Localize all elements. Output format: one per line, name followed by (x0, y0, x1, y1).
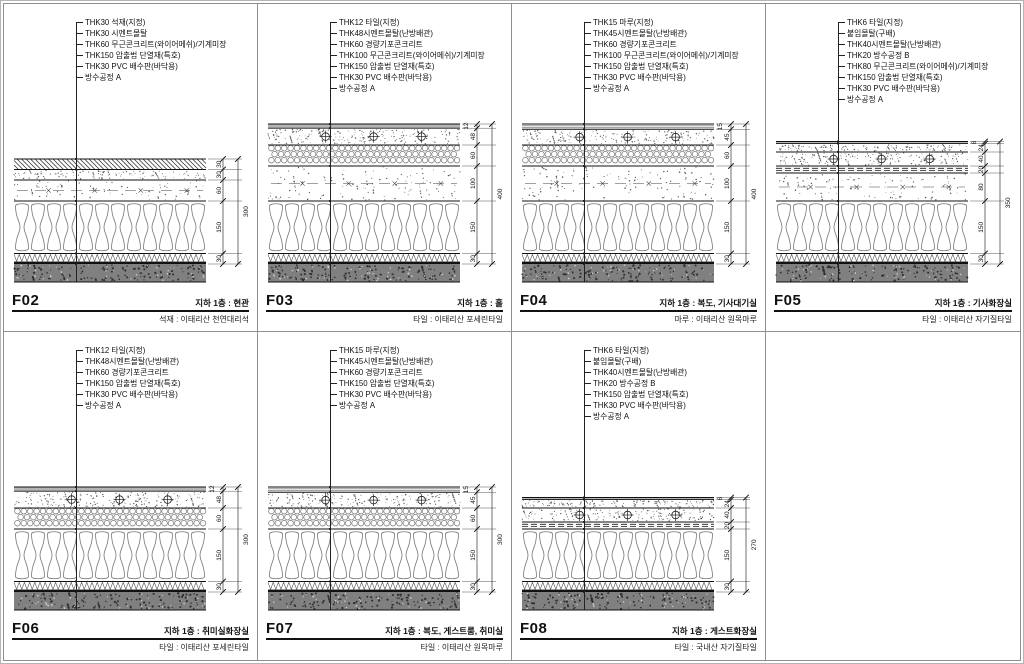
section-drawing: 30306015030300 (10, 96, 252, 292)
room-label: 지하 1층 : 게스트화장실 (672, 625, 757, 637)
leader-line (330, 22, 331, 282)
layer-concrete (522, 166, 714, 200)
material-callout: THK15 마루(지정) (584, 17, 739, 28)
finish-note: 석재 : 이태리산 천연대리석 (12, 314, 249, 325)
material-callout: THK12 타일(지정) (330, 17, 485, 28)
material-callout: THK150 압출법 단열재(특호) (584, 389, 689, 400)
material-callout: THK30 PVC 배수판(바닥용) (838, 83, 988, 94)
material-callout: THK80 무근콘크리트(와이어메쉬)/기계미장 (838, 61, 988, 72)
layer-stone (14, 159, 206, 170)
layer-tile (268, 124, 460, 127)
dimension-label: 100 (470, 178, 477, 189)
material-callout: THK30 PVC 배수판(바닥용) (76, 61, 226, 72)
dimension-label: 30 (216, 160, 223, 168)
material-callout: 방수공정 A (330, 83, 485, 94)
dimension-label: 20 (724, 522, 731, 530)
layer-waterproof (522, 522, 714, 529)
detail-id: F05 (774, 292, 801, 309)
finish-note: 타일 : 이태리산 원목마루 (266, 642, 503, 653)
layer-concrete (268, 167, 461, 201)
detail-id: F06 (12, 620, 39, 637)
section-drawing: 624402015030270 (518, 424, 760, 620)
material-callout: THK45시멘트몰탈(난방배관) (330, 356, 435, 367)
section-drawing: 12486010015030400 (264, 96, 506, 292)
finish-note: 타일 : 이태리산 자기질타일 (774, 314, 1012, 325)
dimension-label: 30 (216, 171, 223, 179)
dimension-label: 150 (724, 221, 731, 232)
material-callout: THK60 무근콘크리트(와이어메쉬)/기계미장 (76, 39, 226, 50)
room-label: 지하 1층 : 취미실화장실 (164, 625, 249, 637)
material-callout: THK48시멘트몰탈(난방배관) (76, 356, 181, 367)
dimension-label: 80 (978, 183, 985, 191)
dimension-label: 20 (978, 166, 985, 174)
title-row: F08지하 1층 : 게스트화장실 (520, 620, 757, 640)
material-callout: THK20 방수공정 B (838, 50, 988, 61)
dimension-label: 30 (216, 255, 223, 263)
material-callout: THK100 무근콘크리트(와이어메쉬)/기계미장 (584, 50, 739, 61)
layer-slab (14, 264, 206, 282)
material-callout: THK150 압출법 단열재(특호) (330, 378, 435, 389)
room-label: 지하 1층 : 복도, 기사대기실 (659, 297, 757, 309)
detail-id: F02 (12, 292, 39, 309)
layer-slab (521, 264, 714, 282)
panel-f07: THK15 마루(지정)THK45시멘트몰탈(난방배관)THK60 경량기포콘크… (258, 332, 512, 660)
layer-waterproof (776, 166, 968, 173)
layer-concrete (779, 173, 966, 200)
empty-cell (766, 332, 1020, 660)
layer-drain (14, 254, 206, 264)
section-drawing: 15456010015030400 (518, 96, 760, 292)
dimension-label: 150 (978, 221, 985, 232)
room-label: 지하 1층 : 기사화장실 (935, 297, 1012, 309)
dimension-label: 24 (978, 144, 985, 152)
material-callout: 방수공정 A (584, 83, 739, 94)
panel-f02: THK30 석재(지정)THK30 시멘트몰탈THK60 무근콘크리트(와이어메… (4, 4, 258, 332)
material-callout: THK30 PVC 배수판(바닥용) (584, 72, 739, 83)
material-callout: THK150 압출법 단열재(특호) (76, 50, 226, 61)
material-callout: THK40시멘트몰탈(난방배관) (838, 39, 988, 50)
material-callout: THK150 압출법 단열재(특호) (76, 378, 181, 389)
dimension-label: 48 (216, 496, 223, 504)
material-callout: THK30 PVC 배수판(바닥용) (330, 72, 485, 83)
layer-concrete (14, 180, 206, 200)
layer-insulation (778, 204, 967, 251)
total-dimension-label: 350 (1005, 197, 1012, 208)
dimension-label: 12 (463, 122, 470, 130)
layer-insulation (524, 532, 713, 579)
layer-mortar_pipe (268, 129, 461, 145)
layer-mortar_pipe (14, 492, 204, 508)
layer-slab (14, 592, 206, 610)
leader-line (584, 350, 585, 610)
room-label: 지하 1층 : 현관 (195, 297, 249, 309)
title-block: F08지하 1층 : 게스트화장실타일 : 국내산 자기질타일 (520, 620, 757, 653)
layer-foam (269, 508, 460, 526)
layer-mortar_pipe (780, 153, 968, 166)
drawing-sheet: THK30 석재(지정)THK30 시멘트몰탈THK60 무근콘크리트(와이어메… (0, 0, 1024, 664)
material-callout: THK150 압출법 단열재(특호) (584, 61, 739, 72)
dimension-label: 15 (717, 123, 724, 131)
panel-f08: THK6 타일(지정)붙임몰탈(구배)THK40시멘트몰탈(난방배관)THK20… (512, 332, 766, 660)
dimension-label: 150 (470, 549, 477, 560)
title-row: F07지하 1층 : 복도, 게스트룸, 취미실 (266, 620, 503, 640)
leader-line (76, 350, 77, 610)
material-callouts: THK12 타일(지정)THK48시멘트몰탈(난방배관)THK60 경량기포콘크… (76, 345, 181, 411)
layer-insulation (524, 204, 713, 251)
detail-id: F03 (266, 292, 293, 309)
material-callout: THK15 마루(지정) (330, 345, 435, 356)
dimension-label: 45 (470, 496, 477, 504)
layer-drain (522, 254, 714, 264)
dimension-label: 24 (724, 500, 731, 508)
material-callouts: THK15 마루(지정)THK45시멘트몰탈(난방배관)THK60 경량기포콘크… (584, 17, 739, 94)
material-callout: 방수공정 A (584, 411, 689, 422)
total-dimension-label: 270 (751, 539, 758, 550)
layer-slab (268, 264, 460, 282)
panel-f05: THK6 타일(지정)붙임몰탈(구배)THK40시멘트몰탈(난방배관)THK20… (766, 4, 1020, 332)
material-callouts: THK12 타일(지정)THK48시멘트몰탈(난방배관)THK60 경량기포콘크… (330, 17, 485, 94)
layer-tile (776, 142, 968, 143)
dimension-label: 100 (724, 178, 731, 189)
material-callouts: THK30 석재(지정)THK30 시멘트몰탈THK60 무근콘크리트(와이어메… (76, 17, 226, 83)
detail-id: F08 (520, 620, 547, 637)
finish-note: 타일 : 이태리산 포세린타일 (266, 314, 503, 325)
layer-drain (268, 582, 460, 592)
finish-note: 타일 : 이태리산 포세린타일 (12, 642, 249, 653)
section-drawing: 62440208015030350 (772, 96, 1014, 292)
title-row: F06지하 1층 : 취미실화장실 (12, 620, 249, 640)
title-block: F02지하 1층 : 현관석재 : 이태리산 천연대리석 (12, 292, 249, 325)
dimension-label: 30 (216, 583, 223, 591)
material-callout: THK40시멘트몰탈(난방배관) (584, 367, 689, 378)
leader-line (838, 22, 839, 282)
layer-insulation (16, 532, 205, 579)
material-callout: THK150 압출법 단열재(특호) (330, 61, 485, 72)
layer-tile (522, 498, 714, 499)
dimension-label: 12 (209, 485, 216, 493)
material-callouts: THK6 타일(지정)붙임몰탈(구배)THK40시멘트몰탈(난방배관)THK20… (584, 345, 689, 422)
layer-mortar (14, 170, 206, 180)
finish-note: 타일 : 국내산 자기질타일 (520, 642, 757, 653)
dimension-label: 60 (216, 187, 223, 195)
title-block: F03지하 1층 : 홀타일 : 이태리산 포세린타일 (266, 292, 503, 325)
layer-slab (268, 592, 460, 610)
dimension-label: 150 (724, 549, 731, 560)
dimension-label: 40 (724, 511, 731, 519)
detail-grid: THK30 석재(지정)THK30 시멘트몰탈THK60 무근콘크리트(와이어메… (3, 3, 1021, 661)
dimension-label: 6 (717, 496, 724, 500)
dimension-label: 48 (470, 133, 477, 141)
material-callout: THK20 방수공정 B (584, 378, 689, 389)
material-callout: 붙임몰탈(구배) (584, 356, 689, 367)
title-block: F07지하 1층 : 복도, 게스트룸, 취미실타일 : 이태리산 원목마루 (266, 620, 503, 653)
total-dimension-label: 300 (243, 206, 250, 217)
dimension-label: 60 (216, 515, 223, 523)
layer-bond (522, 500, 715, 508)
total-dimension-label: 300 (243, 534, 250, 545)
material-callout: THK30 PVC 배수판(바닥용) (584, 400, 689, 411)
total-dimension-label: 300 (497, 534, 504, 545)
layer-wood (522, 124, 714, 129)
leader-line (76, 22, 77, 282)
dimension-label: 60 (724, 152, 731, 160)
layer-drain (776, 254, 968, 264)
layer-drain (14, 582, 206, 592)
layer-foam (15, 508, 206, 526)
material-callout: THK6 타일(지정) (838, 17, 988, 28)
title-block: F06지하 1층 : 취미실화장실타일 : 이태리산 포세린타일 (12, 620, 249, 653)
room-label: 지하 1층 : 복도, 게스트룸, 취미실 (385, 625, 503, 637)
material-callout: 붙임몰탈(구배) (838, 28, 988, 39)
material-callout: THK60 경량기포콘크리트 (76, 367, 181, 378)
material-callout: THK45시멘트몰탈(난방배관) (584, 28, 739, 39)
section-drawing: 15456015030300 (264, 424, 506, 620)
leader-line (584, 22, 585, 282)
material-callout: THK12 타일(지정) (76, 345, 181, 356)
dimension-label: 6 (971, 140, 978, 144)
dimension-label: 150 (216, 221, 223, 232)
total-dimension-label: 400 (751, 188, 758, 199)
layer-mortar_pipe (522, 508, 715, 521)
title-row: F04지하 1층 : 복도, 기사대기실 (520, 292, 757, 312)
material-callout: THK30 PVC 배수판(바닥용) (330, 389, 435, 400)
material-callouts: THK6 타일(지정)붙임몰탈(구배)THK40시멘트몰탈(난방배관)THK20… (838, 17, 988, 105)
dimension-label: 30 (470, 583, 477, 591)
layer-drain (522, 582, 714, 592)
material-callout: THK100 무근콘크리트(와이어메쉬)/기계미장 (330, 50, 485, 61)
material-callout: THK30 PVC 배수판(바닥용) (76, 389, 181, 400)
dimension-label: 60 (470, 515, 477, 523)
material-callout: THK150 압출법 단열재(특호) (838, 72, 988, 83)
panel-f03: THK12 타일(지정)THK48시멘트몰탈(난방배관)THK60 경량기포콘크… (258, 4, 512, 332)
material-callout: THK60 경량기포콘크리트 (584, 39, 739, 50)
title-block: F05지하 1층 : 기사화장실타일 : 이태리산 자기질타일 (774, 292, 1012, 325)
layer-insulation (16, 204, 205, 251)
material-callouts: THK15 마루(지정)THK45시멘트몰탈(난방배관)THK60 경량기포콘크… (330, 345, 435, 411)
panel-f06: THK12 타일(지정)THK48시멘트몰탈(난방배관)THK60 경량기포콘크… (4, 332, 258, 660)
detail-id: F07 (266, 620, 293, 637)
material-callout: THK48시멘트몰탈(난방배관) (330, 28, 485, 39)
title-row: F05지하 1층 : 기사화장실 (774, 292, 1012, 312)
material-callout: THK6 타일(지정) (584, 345, 689, 356)
layer-mortar_pipe (523, 130, 714, 145)
title-row: F02지하 1층 : 현관 (12, 292, 249, 312)
dimension-label: 30 (470, 255, 477, 263)
layer-foam (523, 145, 714, 163)
material-callout: 방수공정 A (838, 94, 988, 105)
material-callout: THK60 경량기포콘크리트 (330, 367, 435, 378)
room-label: 지하 1층 : 홀 (457, 297, 503, 309)
material-callout: THK60 경량기포콘크리트 (330, 39, 485, 50)
material-callout: 방수공정 A (76, 400, 181, 411)
leader-line (330, 350, 331, 610)
layer-tile (14, 487, 206, 490)
dimension-label: 40 (978, 155, 985, 163)
layer-drain (268, 254, 460, 264)
dimension-label: 150 (216, 549, 223, 560)
dimension-label: 150 (470, 221, 477, 232)
dimension-label: 30 (978, 255, 985, 263)
dimension-label: 60 (470, 152, 477, 160)
dimension-label: 30 (724, 255, 731, 263)
material-callout: 방수공정 A (76, 72, 226, 83)
layer-bond (779, 144, 967, 152)
layer-insulation (270, 532, 459, 579)
total-dimension-label: 400 (497, 188, 504, 199)
material-callout: THK30 석재(지정) (76, 17, 226, 28)
section-drawing: 12486015030300 (10, 424, 252, 620)
layer-foam (269, 145, 460, 163)
dimension-label: 30 (724, 583, 731, 591)
dimension-label: 15 (463, 486, 470, 494)
layer-insulation (270, 204, 459, 251)
finish-note: 마루 : 이태리산 원목마루 (520, 314, 757, 325)
layer-slab (775, 264, 968, 282)
detail-id: F04 (520, 292, 547, 309)
material-callout: 방수공정 A (330, 400, 435, 411)
layer-slab (521, 592, 714, 610)
title-block: F04지하 1층 : 복도, 기사대기실마루 : 이태리산 원목마루 (520, 292, 757, 325)
title-row: F03지하 1층 : 홀 (266, 292, 503, 312)
panel-f04: THK15 마루(지정)THK45시멘트몰탈(난방배관)THK60 경량기포콘크… (512, 4, 766, 332)
material-callout: THK30 시멘트몰탈 (76, 28, 226, 39)
dimension-label: 45 (724, 133, 731, 141)
layer-wood (268, 487, 460, 492)
layer-mortar_pipe (268, 493, 460, 508)
